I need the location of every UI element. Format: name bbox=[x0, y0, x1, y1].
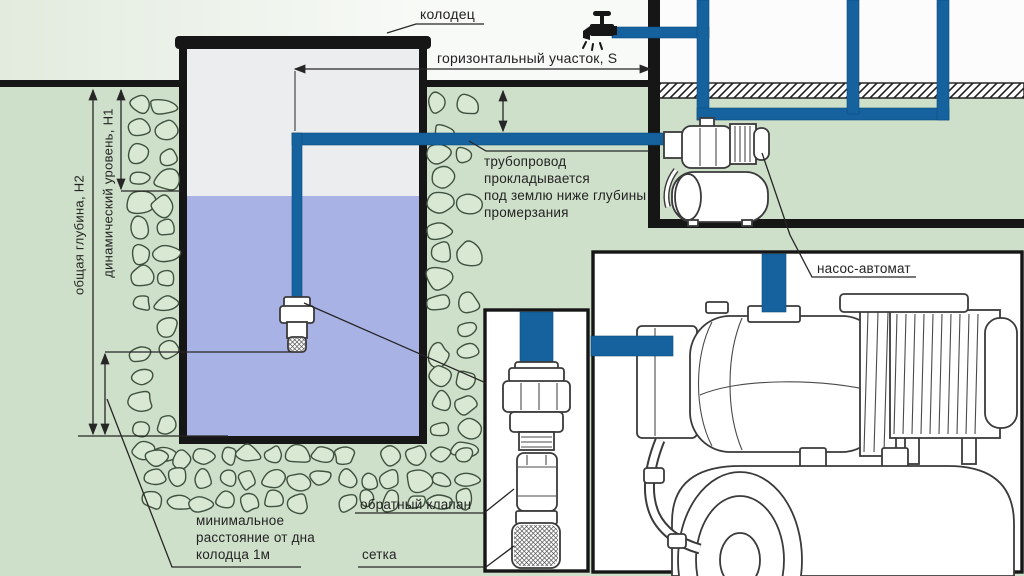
inset-left-pipe bbox=[591, 336, 673, 356]
pump-station-drawing bbox=[637, 294, 1017, 576]
inset-pump-station-box bbox=[591, 252, 1022, 576]
inset-top-pipe bbox=[762, 254, 786, 312]
riser-pipe-1 bbox=[697, 0, 709, 120]
strainer-label: сетка bbox=[362, 546, 397, 563]
underground-pipe bbox=[292, 133, 677, 145]
house-floor-hatch bbox=[659, 83, 1024, 98]
stone bbox=[133, 422, 150, 437]
strainer-drawing bbox=[512, 511, 560, 568]
well-wall-right bbox=[419, 48, 427, 443]
well-shaft-air bbox=[187, 48, 419, 196]
stone bbox=[158, 271, 174, 286]
stone bbox=[457, 194, 483, 214]
detail-pipe bbox=[520, 312, 553, 366]
inset-valve-detail-box bbox=[485, 310, 588, 571]
stone bbox=[158, 416, 176, 434]
riser-pipe-3 bbox=[937, 0, 949, 120]
stone bbox=[128, 392, 152, 412]
min-distance-label: минимальное расстояние от дна колодца 1м bbox=[196, 512, 356, 563]
stone bbox=[131, 216, 149, 239]
pump-station-label: насос-автомат bbox=[817, 260, 911, 277]
check-valve-drawing bbox=[517, 453, 557, 511]
diagram-scene bbox=[0, 0, 1024, 576]
stone bbox=[430, 423, 448, 436]
stone bbox=[335, 447, 355, 464]
well-label: колодец bbox=[420, 6, 475, 23]
dynamic-level-label: динамический уровень, H1 bbox=[100, 108, 117, 278]
well-cap bbox=[175, 36, 431, 49]
riser-pipe-2 bbox=[847, 0, 859, 114]
stone bbox=[130, 172, 150, 184]
well-drop-pipe bbox=[292, 133, 302, 300]
house-interior bbox=[659, 0, 1024, 84]
well-structure bbox=[175, 36, 431, 444]
pipeline-note-label: трубопровод прокладывается под землю ниж… bbox=[484, 153, 659, 221]
ground-surface-left bbox=[0, 80, 179, 87]
stone bbox=[127, 191, 156, 213]
basement-distribution-pipe bbox=[697, 108, 949, 120]
stone bbox=[456, 448, 473, 462]
total-depth-label: общая глубина, H2 bbox=[71, 175, 88, 295]
faucet-pipe bbox=[612, 27, 709, 38]
check-valve-label: обратный клапан bbox=[360, 496, 471, 513]
well-wall-left bbox=[179, 48, 187, 443]
stone bbox=[153, 246, 181, 262]
ground-surface-right bbox=[427, 80, 651, 87]
stone bbox=[157, 219, 174, 235]
horizontal-section-label: горизонтальный участок, S bbox=[437, 50, 617, 67]
stone bbox=[265, 490, 284, 507]
well-pump-diagram: колодец горизонтальный участок, S трубоп… bbox=[0, 0, 1024, 576]
stone bbox=[133, 245, 150, 265]
well-bottom bbox=[179, 436, 427, 444]
